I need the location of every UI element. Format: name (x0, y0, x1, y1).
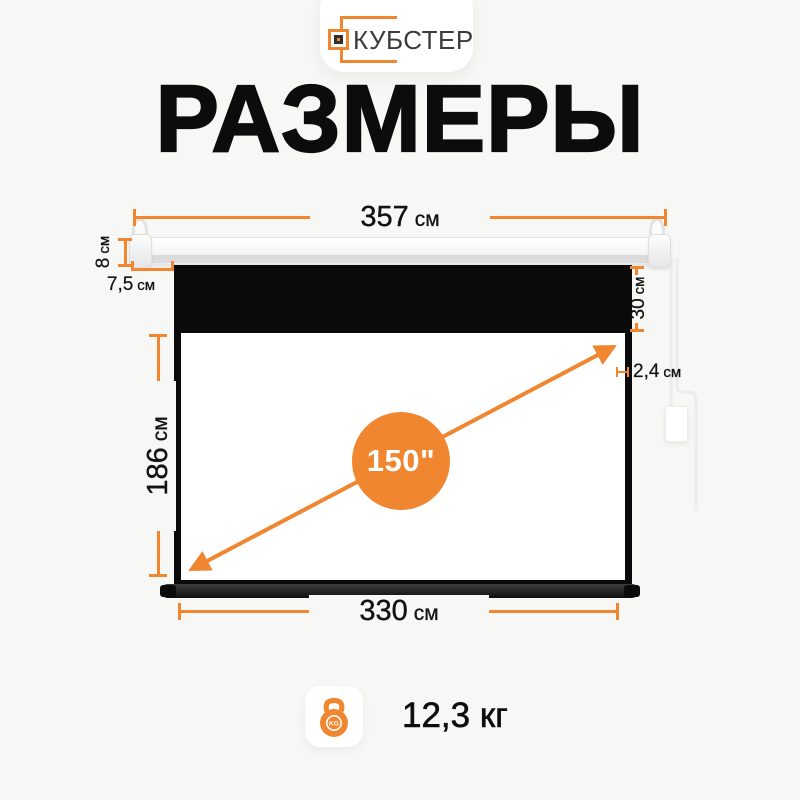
dim-case-height-tick-top (118, 238, 132, 241)
dim-view-width-tick-left (178, 603, 181, 620)
dim-case-height-tick-bottom (118, 264, 132, 267)
dim-view-height-tick-top (149, 334, 167, 337)
dim-top-drop-label: 30см (626, 258, 652, 338)
infographic-page: КУБСТЕР РАЗМЕРЫ 150" 357см (0, 0, 800, 800)
diagonal-arrow (0, 0, 800, 800)
dim-view-width-tick-right (616, 603, 619, 620)
dim-view-height-label: 186см (140, 381, 176, 531)
dim-border-width-label: 2,4см (633, 361, 681, 382)
dim-view-height-tick-bottom (149, 574, 167, 577)
dim-border-width-line (616, 371, 629, 373)
dim-edge-offset-tick-left (131, 261, 134, 271)
diagonal-value: 150" (367, 443, 435, 479)
dim-edge-offset-line (131, 268, 174, 271)
dim-case-height-line (124, 240, 127, 266)
diagonal-size-badge: 150" (352, 412, 450, 510)
dim-total-width-tick-left (133, 209, 136, 226)
dim-total-width-label: 357см (310, 201, 490, 233)
dim-edge-offset-label: 7,5см (96, 274, 166, 296)
dim-edge-offset-tick-right (171, 261, 174, 271)
dim-view-width-label: 330см (309, 595, 489, 627)
dim-total-width-tick-right (664, 209, 667, 226)
